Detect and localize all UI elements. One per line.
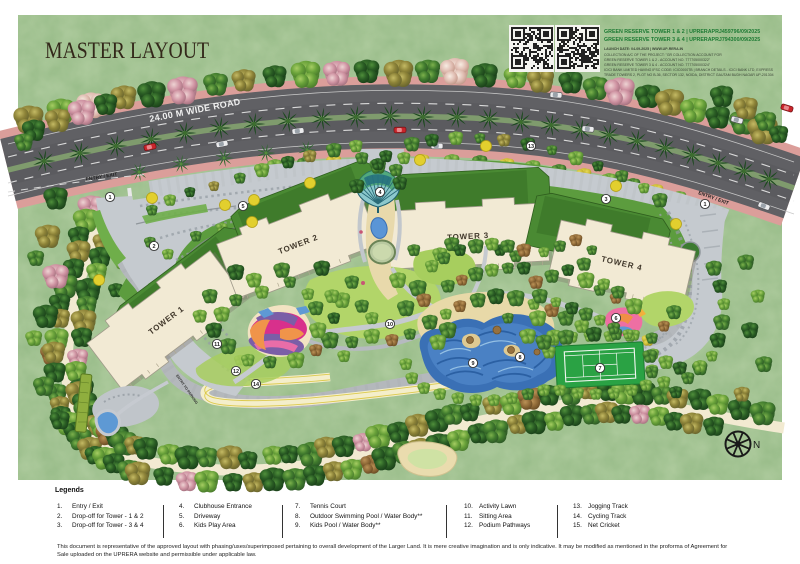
svg-text:LAUNCH DATE: 04-09-2025 | WWW.: LAUNCH DATE: 04-09-2025 | WWW.UP-RERA.IN bbox=[604, 47, 684, 51]
svg-text:COLLECTION A/C OF THE PROJECT:: COLLECTION A/C OF THE PROJECT: "GR COLLE… bbox=[604, 53, 722, 57]
svg-text:3: 3 bbox=[604, 197, 607, 203]
svg-text:1: 1 bbox=[108, 195, 111, 201]
svg-text:10: 10 bbox=[387, 322, 393, 328]
svg-text:GREEN RESERVE TOWER 1 & 2 - AC: GREEN RESERVE TOWER 1 & 2 - ACCOUNT NO. … bbox=[604, 58, 711, 62]
svg-text:5: 5 bbox=[241, 204, 244, 210]
svg-text:8: 8 bbox=[518, 355, 521, 361]
svg-text:13: 13 bbox=[528, 144, 534, 150]
svg-text:14: 14 bbox=[253, 382, 260, 388]
svg-text:7: 7 bbox=[598, 366, 601, 372]
svg-text:MASTER LAYOUT: MASTER LAYOUT bbox=[45, 38, 209, 64]
svg-text:9: 9 bbox=[471, 361, 474, 367]
svg-text:11: 11 bbox=[214, 342, 220, 348]
svg-text:12: 12 bbox=[233, 369, 239, 375]
svg-text:1: 1 bbox=[703, 202, 706, 208]
svg-text:N: N bbox=[753, 440, 760, 451]
svg-text:GREEN RESERVE TOWER 3 & 4 | UP: GREEN RESERVE TOWER 3 & 4 | UPRERAPRJ794… bbox=[604, 37, 760, 43]
svg-text:2: 2 bbox=[152, 244, 155, 250]
svg-text:ICICI BANK LIMITED HAVING IFSC: ICICI BANK LIMITED HAVING IFSC CODE: ICI… bbox=[604, 68, 774, 72]
svg-text:TRADE TOWERS 2, PLOT NO B-36,: TRADE TOWERS 2, PLOT NO B-36, SECTOR 132… bbox=[604, 73, 774, 77]
svg-text:6: 6 bbox=[614, 316, 617, 322]
svg-text:GREEN RESERVE TOWER 3 & 4 - AC: GREEN RESERVE TOWER 3 & 4 - ACCOUNT NO. … bbox=[604, 63, 711, 67]
svg-text:GREEN RESERVE TOWER 1 & 2 | UP: GREEN RESERVE TOWER 1 & 2 | UPRERAPRJ459… bbox=[604, 29, 760, 35]
